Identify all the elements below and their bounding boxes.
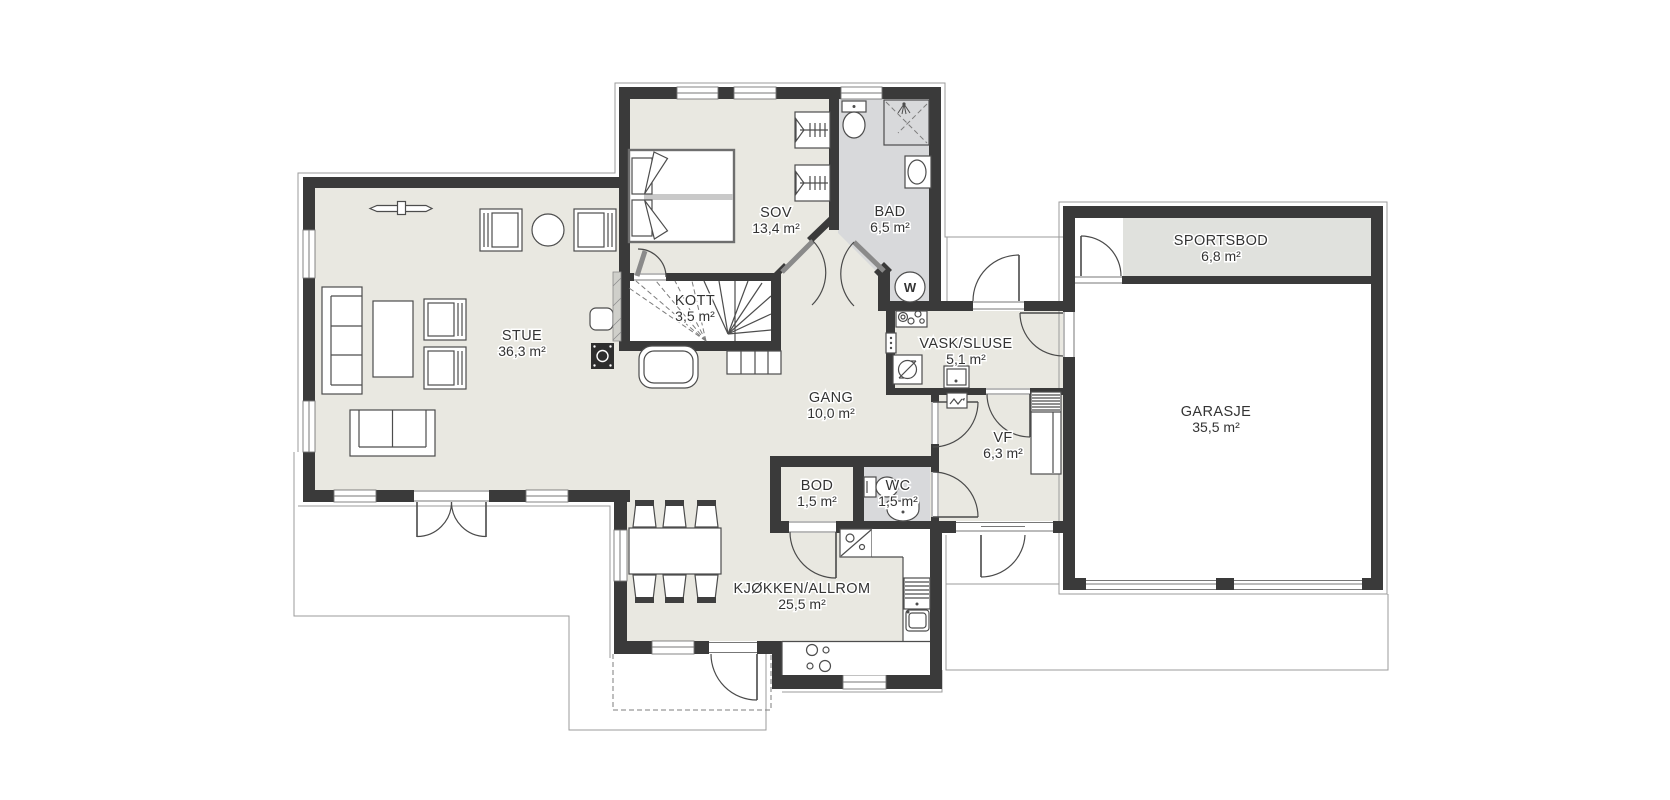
svg-text:SOV: SOV <box>760 205 792 221</box>
svg-text:GANG: GANG <box>809 390 853 406</box>
svg-text:25,5 m²: 25,5 m² <box>778 596 826 612</box>
svg-text:SPORTSBOD: SPORTSBOD <box>1174 233 1268 249</box>
svg-text:6,5 m²: 6,5 m² <box>870 219 910 235</box>
svg-text:6,8 m²: 6,8 m² <box>1201 248 1241 264</box>
svg-text:BOD: BOD <box>801 478 834 494</box>
svg-text:VASK/SLUSE: VASK/SLUSE <box>919 336 1012 352</box>
svg-text:GARASJE: GARASJE <box>1181 404 1252 420</box>
svg-text:6,3 m²: 6,3 m² <box>983 445 1023 461</box>
svg-text:3,5 m²: 3,5 m² <box>675 308 715 324</box>
svg-text:BAD: BAD <box>874 204 905 220</box>
svg-text:STUE: STUE <box>502 328 542 344</box>
svg-text:KOTT: KOTT <box>675 293 715 309</box>
svg-text:35,5 m²: 35,5 m² <box>1192 419 1240 435</box>
svg-text:1,5 m²: 1,5 m² <box>797 493 837 509</box>
svg-text:1,5 m²: 1,5 m² <box>878 493 918 509</box>
svg-text:13,4 m²: 13,4 m² <box>752 220 800 236</box>
svg-text:W: W <box>904 280 917 295</box>
svg-text:5,1 m²: 5,1 m² <box>946 351 986 367</box>
svg-text:10,0 m²: 10,0 m² <box>807 405 855 421</box>
svg-text:KJØKKEN/ALLROM: KJØKKEN/ALLROM <box>734 581 871 597</box>
svg-text:WC: WC <box>886 478 911 494</box>
svg-text:36,3 m²: 36,3 m² <box>498 343 546 359</box>
svg-text:VF: VF <box>993 430 1012 446</box>
